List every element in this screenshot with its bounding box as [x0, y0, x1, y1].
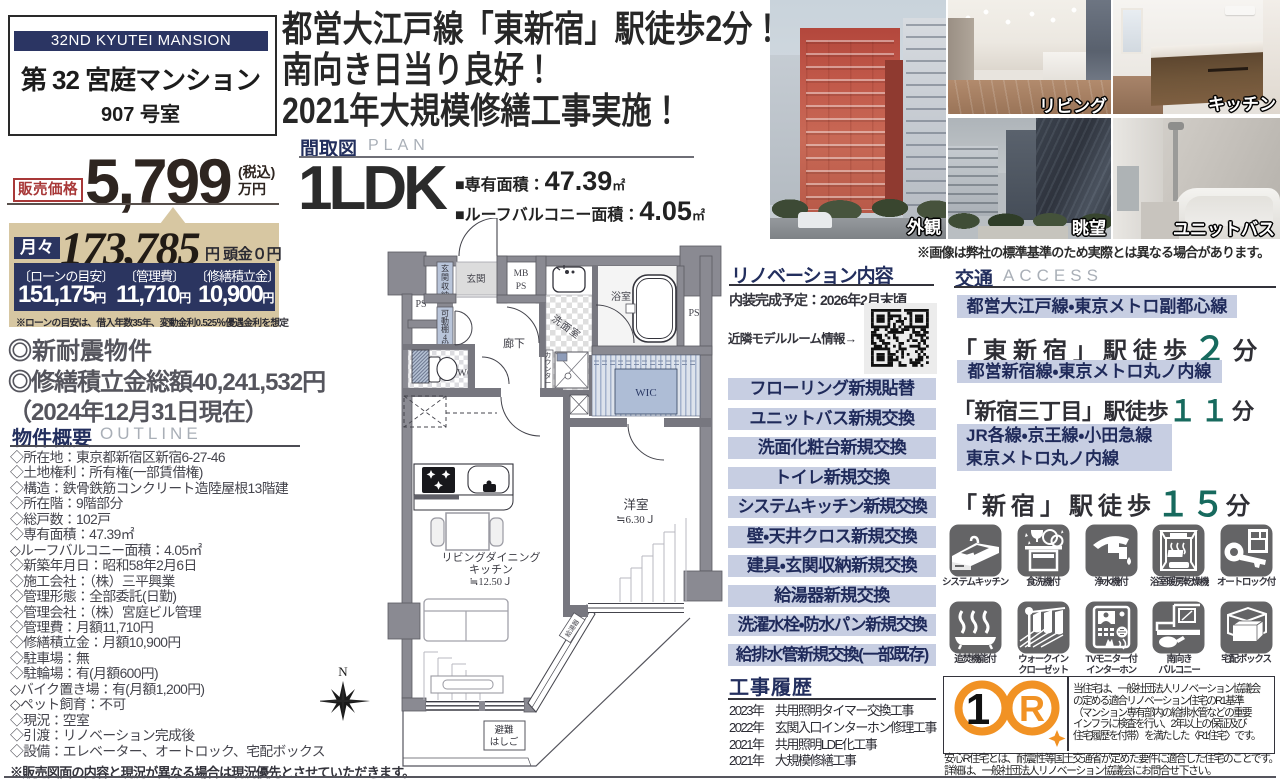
svg-text:MB: MB	[514, 269, 529, 279]
svg-text:カウンター: カウンター	[545, 351, 552, 387]
svg-text:PS: PS	[688, 308, 699, 319]
svg-text:1: 1	[966, 685, 990, 734]
svg-text:玄関: 玄関	[466, 273, 485, 285]
svg-text:キッチン: キッチン	[469, 563, 513, 576]
svg-text:WIC: WIC	[635, 387, 656, 399]
svg-text:PS: PS	[516, 282, 527, 292]
svg-text:N: N	[338, 664, 348, 679]
svg-text:廊下: 廊下	[503, 336, 525, 350]
svg-text:はしご: はしご	[490, 736, 519, 748]
svg-text:避難: 避難	[494, 724, 514, 736]
svg-text:R: R	[1019, 688, 1045, 729]
svg-text:可動棚4段: 可動棚4段	[441, 309, 449, 349]
svg-text:洋室: 洋室	[623, 497, 648, 512]
svg-text:≒6.30Ｊ: ≒6.30Ｊ	[616, 514, 655, 526]
svg-text:リビングダイニング: リビングダイニング	[442, 550, 541, 564]
svg-text:浴室: 浴室	[611, 290, 631, 303]
svg-text:≒12.50Ｊ: ≒12.50Ｊ	[470, 577, 513, 588]
